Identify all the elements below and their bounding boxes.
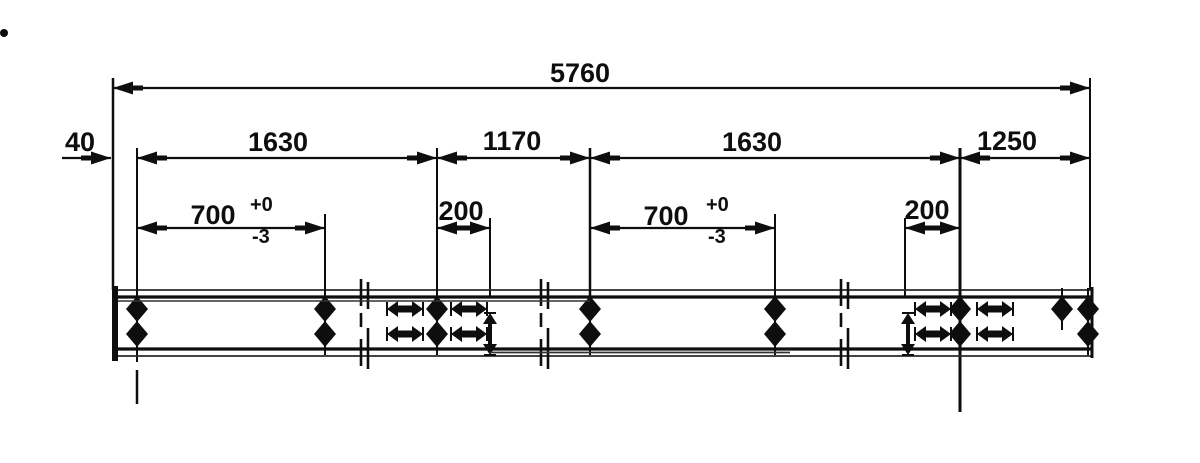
arrowhead-icon (940, 152, 960, 165)
arrowhead-icon (113, 82, 133, 95)
arrowhead-icon (137, 152, 157, 165)
rivet-v-arrow-body (488, 322, 492, 346)
rivet-h-arrow-icon (1002, 301, 1013, 317)
arrowhead-icon (437, 152, 457, 165)
rivet-diamond-icon (426, 321, 448, 347)
arrowhead-icon-tail (295, 226, 307, 231)
arrowhead-icon-tail (745, 226, 757, 231)
rivet-diamond-icon (764, 321, 786, 347)
rivet-h-arrow-icon (387, 326, 398, 342)
dim-label-span-1630-right: 1630 (722, 127, 782, 157)
dim-label-span-200-right: 200 (904, 195, 949, 225)
rivet-h-arrow-icon (915, 326, 926, 342)
rivet-v-arrow-icon (901, 313, 915, 324)
arrowhead-icon (590, 222, 610, 235)
arrowhead-icon (570, 152, 590, 165)
rivet-h-arrow-body (986, 331, 1004, 338)
arrowhead-icon-tail (407, 156, 419, 161)
arrowhead-icon (305, 222, 325, 235)
rivet-diamond-icon (126, 321, 148, 347)
beam-dimension-drawing: 5760401630117016301250700+0-3200700+0-32… (0, 0, 1200, 463)
arrowhead-icon-tail (608, 226, 620, 231)
rivet-h-arrow-body (460, 306, 478, 313)
rivet-h-arrow-icon (1002, 326, 1013, 342)
arrowhead-icon (137, 222, 157, 235)
dim-label-span-700-left: 700 (190, 200, 235, 230)
rivet-diamond-icon (1077, 321, 1099, 347)
rivet-h-arrow-icon (476, 326, 487, 342)
arrowhead-icon-tail (1060, 156, 1072, 161)
arrowhead-icon (590, 152, 610, 165)
rivet-v-arrow-body (906, 322, 910, 346)
rivet-diamond-icon (314, 321, 336, 347)
arrowhead-icon (417, 152, 437, 165)
dim-label-offset-40: 40 (65, 127, 95, 157)
rivet-h-arrow-icon (451, 326, 462, 342)
rivet-h-arrow-icon (915, 301, 926, 317)
rivet-diamond-icon (579, 321, 601, 347)
dim-label-span-1630-left: 1630 (248, 127, 308, 157)
dim-label-span-1170: 1170 (483, 126, 542, 156)
arrowhead-icon-tail (930, 226, 942, 231)
rivet-h-arrow-body (924, 331, 942, 338)
arrowhead-icon-tail (131, 86, 143, 91)
arrowhead-icon (755, 222, 775, 235)
rivet-h-arrow-icon (412, 326, 423, 342)
rivet-h-arrow-icon (451, 301, 462, 317)
arrowhead-icon-tail (455, 156, 467, 161)
dim-tol-minus-span-700-right: -3 (708, 226, 726, 248)
arrowhead-icon-tail (155, 156, 167, 161)
rivet-h-arrow-icon (387, 301, 398, 317)
rivet-diamond-icon (949, 321, 971, 347)
rivet-h-arrow-body (396, 306, 414, 313)
dim-label-span-700-right: 700 (643, 201, 688, 231)
rivet-h-arrow-icon (977, 301, 988, 317)
arrowhead-icon-tail (978, 156, 990, 161)
dim-label-span-200-left: 200 (438, 196, 483, 226)
arrowhead-icon-tail (608, 156, 620, 161)
dim-tol-minus-span-700-left: -3 (252, 226, 270, 248)
rivet-h-arrow-body (924, 306, 942, 313)
arrowhead-icon-tail (930, 156, 942, 161)
rivet-h-arrow-body (460, 331, 478, 338)
rivet-h-arrow-icon (476, 301, 487, 317)
scan-speck (0, 29, 8, 37)
rivet-h-arrow-body (396, 331, 414, 338)
arrowhead-icon-tail (155, 226, 167, 231)
drawing-canvas: 5760401630117016301250700+0-3200700+0-32… (0, 0, 1200, 463)
rivet-diamond-icon (1051, 296, 1073, 322)
dim-label-overall-5760: 5760 (550, 58, 610, 88)
rivet-h-arrow-icon (412, 301, 423, 317)
dim-tol-plus-span-700-right: +0 (706, 194, 729, 216)
arrowhead-icon (1070, 82, 1090, 95)
rivet-h-arrow-body (986, 306, 1004, 313)
arrowhead-icon-tail (460, 226, 472, 231)
arrowhead-icon-tail (560, 156, 572, 161)
arrowhead-icon-tail (1060, 86, 1072, 91)
rivet-v-arrow-icon (483, 313, 497, 324)
rivet-h-arrow-icon (977, 326, 988, 342)
dim-label-span-1250: 1250 (977, 126, 1037, 156)
dim-tol-plus-span-700-left: +0 (250, 194, 273, 216)
arrowhead-icon (1070, 152, 1090, 165)
